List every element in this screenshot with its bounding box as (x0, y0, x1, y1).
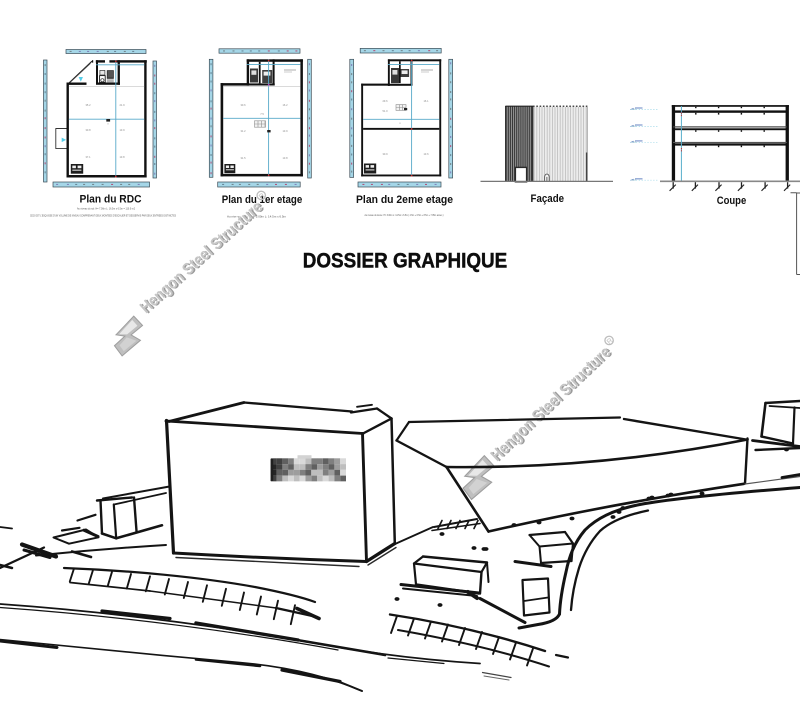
svg-text:13.9: 13.9 (119, 128, 125, 132)
svg-text:31.5: 31.5 (240, 156, 246, 160)
svg-text:13.8: 13.8 (119, 155, 125, 159)
svg-text:Coupe: Coupe (717, 195, 747, 207)
svg-text:30.9: 30.9 (382, 152, 388, 156)
svg-text:37.1: 37.1 (85, 155, 91, 159)
svg-text:Au niveau du sol: H= 7.00m L:: Au niveau du sol: H= 7.00m L: 16.5m x 6.… (77, 206, 135, 210)
svg-text:16.2: 16.2 (282, 103, 288, 107)
svg-text:13.6: 13.6 (423, 152, 429, 156)
svg-text:13.8: 13.8 (282, 156, 288, 160)
svg-text:31.2: 31.2 (240, 129, 246, 133)
svg-text:Plan du 2eme etage: Plan du 2eme etage (356, 194, 453, 206)
svg-text:13.9: 13.9 (282, 129, 288, 133)
svg-text:30.6: 30.6 (240, 103, 246, 107)
svg-text:Façade: Façade (531, 193, 565, 205)
svg-text:30.8: 30.8 (85, 128, 91, 132)
svg-text:CECI EST L'ESQUISSE D'UN VOLUM: CECI EST L'ESQUISSE D'UN VOLUME DE NIVEA… (30, 214, 176, 218)
svg-text:16.1: 16.1 (423, 99, 429, 103)
svg-text:35.2: 35.2 (85, 103, 91, 107)
svg-text:DOSSIER GRAPHIQUE: DOSSIER GRAPHIQUE (303, 247, 508, 272)
svg-text:Plan du RDC: Plan du RDC (80, 194, 142, 206)
svg-text:21.9: 21.9 (119, 103, 125, 107)
svg-text:51.0: 51.0 (382, 109, 388, 113)
svg-text:Au niveau du 2eme: H= 3.00m L:: Au niveau du 2eme: H= 3.00m L: 14.5m x 6… (365, 213, 444, 217)
svg-text:29.6: 29.6 (382, 99, 388, 103)
svg-text:7.5: 7.5 (260, 112, 264, 116)
